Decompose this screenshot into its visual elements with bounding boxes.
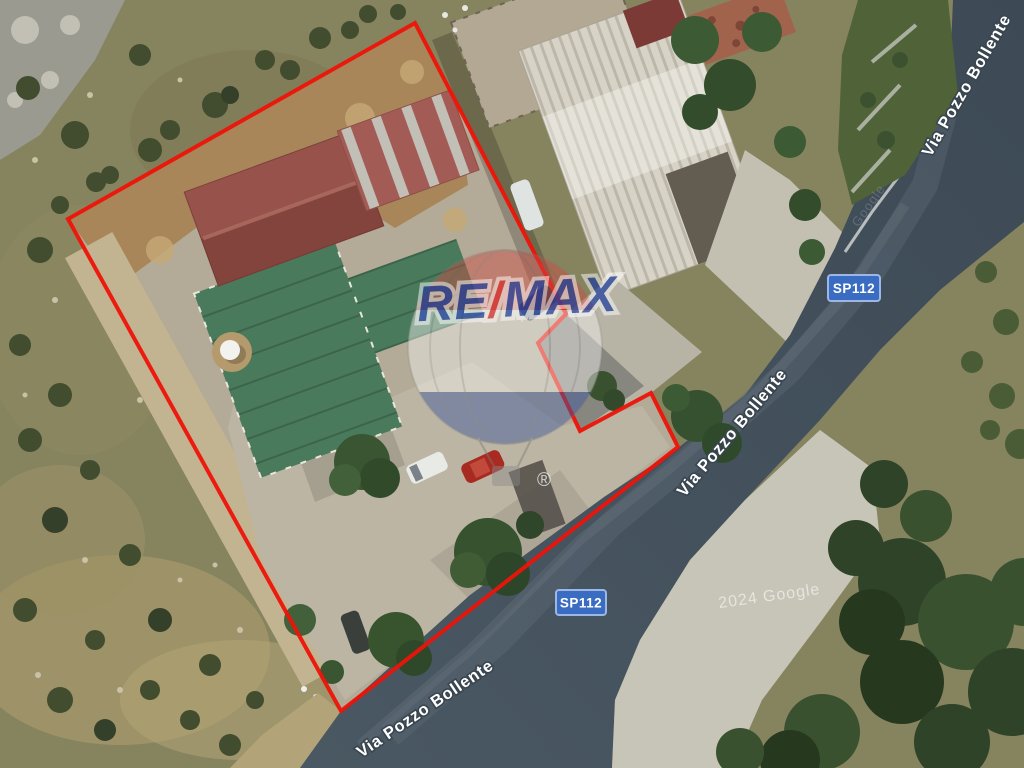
registered-mark: ® <box>537 470 551 491</box>
route-badge-label: SP112 <box>560 596 602 611</box>
route-badge-label: SP112 <box>833 281 875 296</box>
svg-text:RE/MAX: RE/MAX <box>416 266 621 333</box>
route-badge-sp112-lower: SP112 <box>556 590 606 615</box>
white-dome <box>212 332 252 372</box>
remax-wordmark: RE/MAX RE/MAX <box>416 266 621 333</box>
map-canvas: Via Pozzo Bollente Via Pozzo Bollente Vi… <box>0 0 1024 768</box>
satellite-map-view: Via Pozzo Bollente Via Pozzo Bollente Vi… <box>0 0 1024 768</box>
route-badge-sp112-upper: SP112 <box>828 275 880 301</box>
